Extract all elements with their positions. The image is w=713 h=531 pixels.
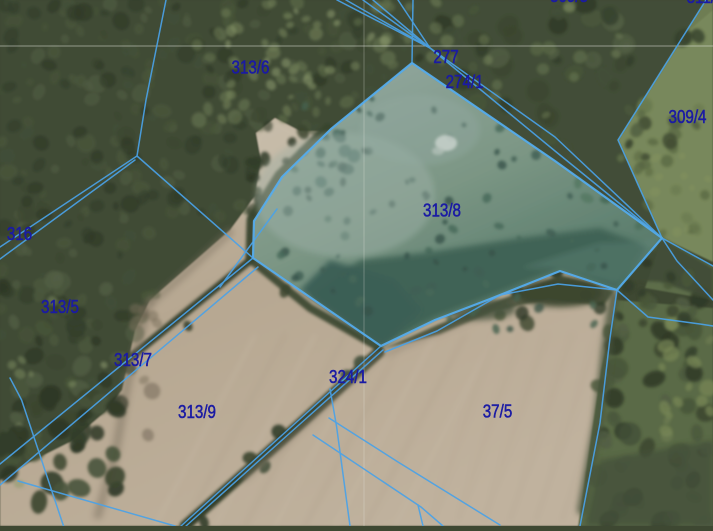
svg-text:277: 277 [433,47,458,68]
svg-text:313/5: 313/5 [41,297,79,318]
svg-text:324/1: 324/1 [329,367,367,388]
svg-text:313/6: 313/6 [232,57,270,78]
svg-text:309/3: 309/3 [550,0,588,6]
svg-text:37/5: 37/5 [483,401,513,422]
svg-text:316: 316 [7,224,32,245]
svg-text:311/1: 311/1 [687,0,713,7]
svg-text:274/1: 274/1 [446,72,484,93]
svg-text:313/9: 313/9 [178,402,216,423]
svg-text:313/8: 313/8 [423,200,461,221]
svg-text:309/4: 309/4 [669,107,707,128]
svg-text:313/7: 313/7 [114,350,152,371]
